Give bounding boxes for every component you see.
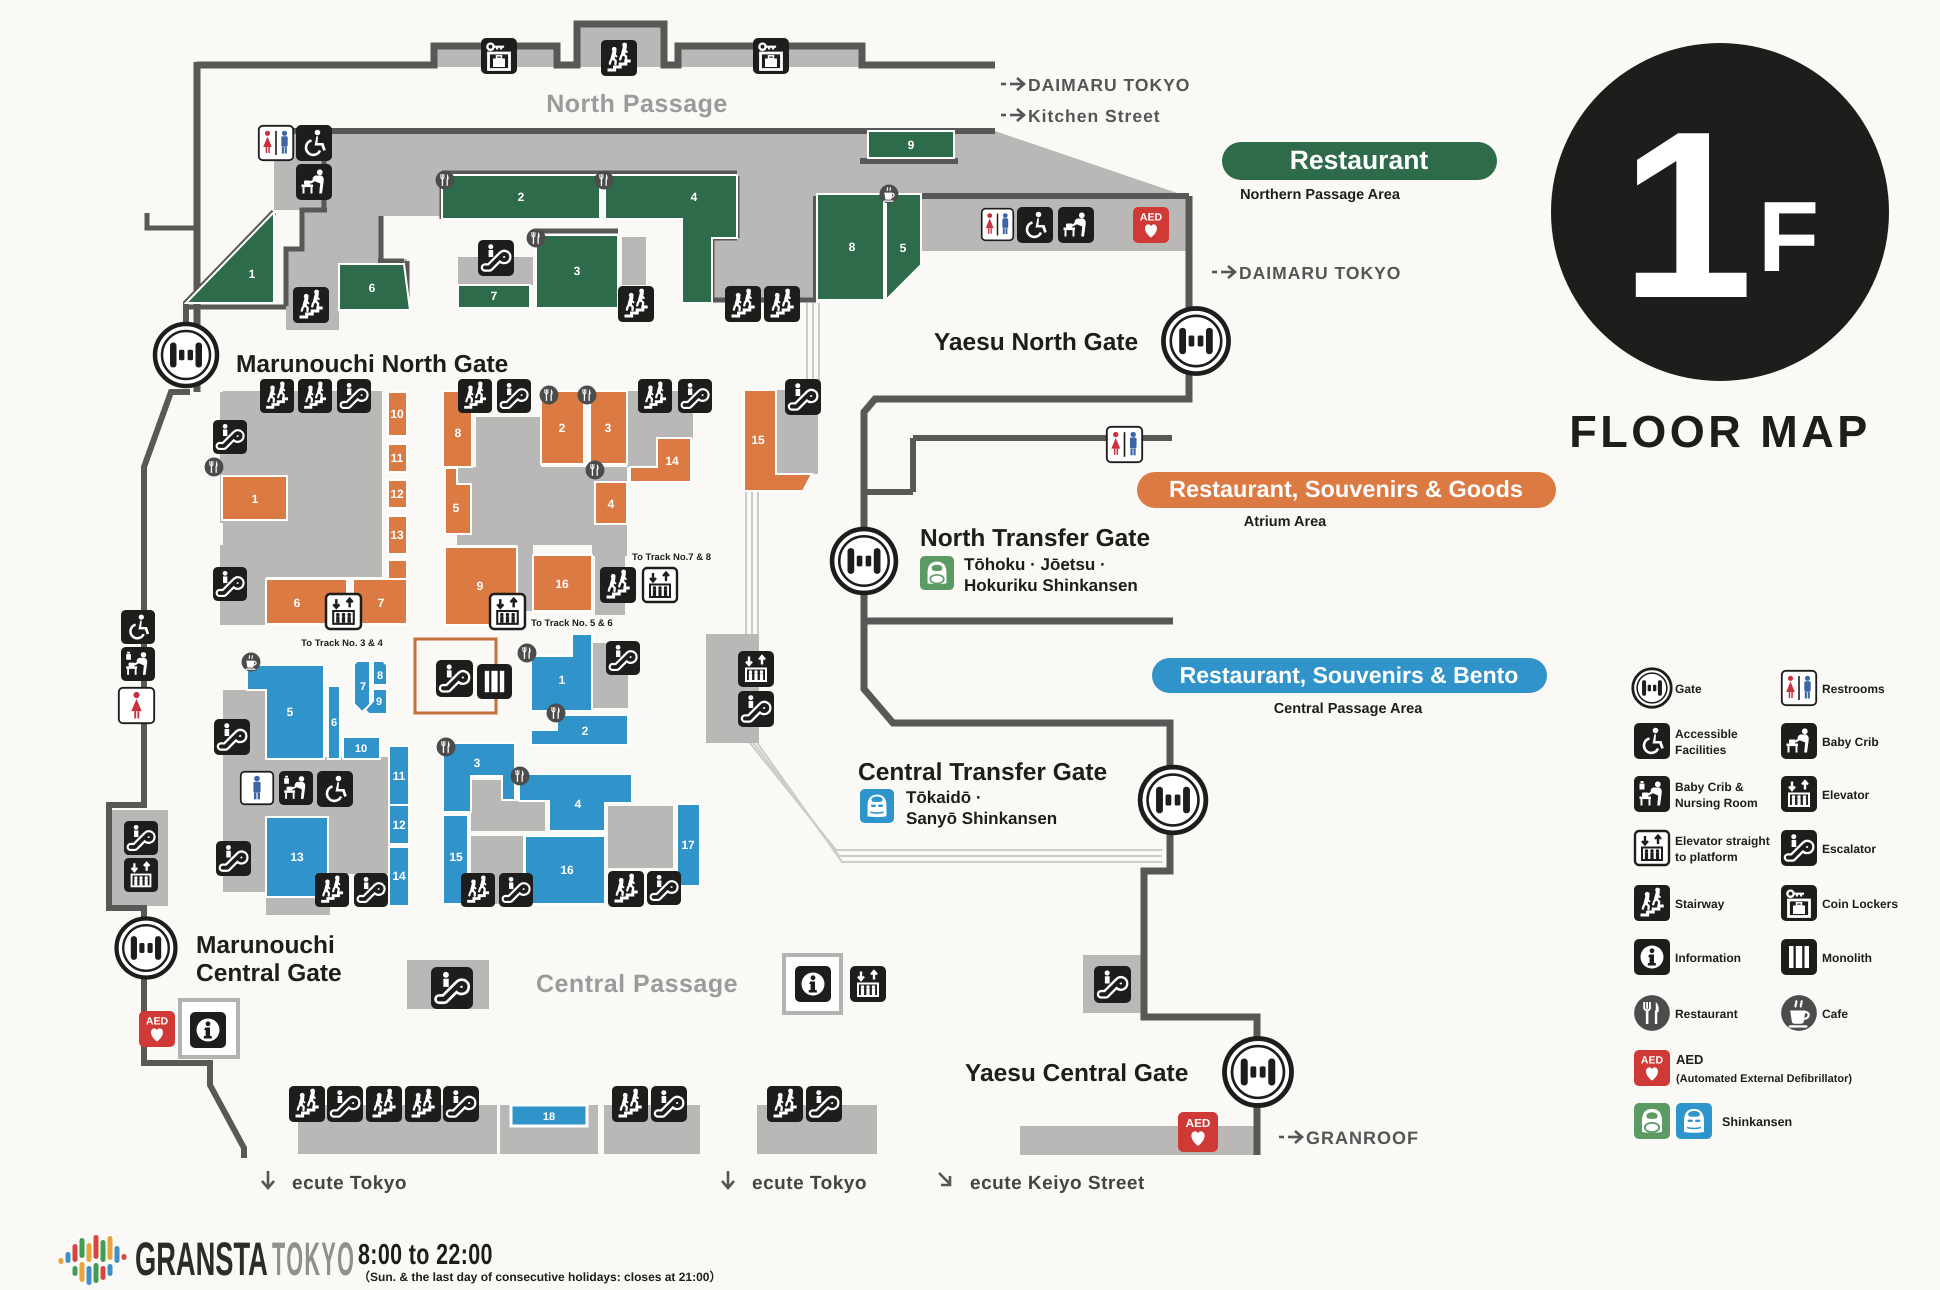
svg-text:7: 7 (378, 596, 385, 610)
svg-text:2: 2 (518, 190, 525, 204)
svg-text:ecute Tokyo: ecute Tokyo (752, 1173, 867, 1194)
svg-text:Sanyō Shinkansen: Sanyō Shinkansen (906, 809, 1057, 828)
svg-text:Cafe: Cafe (1822, 1007, 1848, 1021)
svg-text:10: 10 (355, 743, 367, 755)
svg-text:Kitchen Street: Kitchen Street (1028, 106, 1161, 126)
svg-text:8:00 to 22:00: 8:00 to 22:00 (358, 1239, 493, 1271)
svg-text:Central Transfer Gate: Central Transfer Gate (858, 759, 1107, 786)
svg-text:11: 11 (393, 769, 406, 783)
svg-text:5: 5 (900, 241, 907, 255)
svg-text:4: 4 (691, 190, 698, 204)
svg-text:Monolith: Monolith (1822, 951, 1872, 965)
svg-text:Marunouchi: Marunouchi (196, 932, 335, 959)
svg-text:1: 1 (1621, 83, 1753, 348)
svg-text:12: 12 (392, 818, 406, 832)
svg-text:Gate: Gate (1675, 682, 1702, 696)
svg-text:11: 11 (391, 451, 404, 465)
svg-text:North Transfer Gate: North Transfer Gate (920, 525, 1150, 552)
svg-text:DAIMARU TOKYO: DAIMARU TOKYO (1239, 263, 1401, 283)
svg-text:GRANSTA: GRANSTA (135, 1232, 268, 1285)
svg-text:Shinkansen: Shinkansen (1722, 1115, 1792, 1129)
svg-text:Restaurant, Souvenirs & Bento: Restaurant, Souvenirs & Bento (1180, 662, 1519, 688)
svg-text:2: 2 (559, 421, 566, 435)
svg-text:10: 10 (390, 407, 404, 421)
svg-text:Yaesu Central Gate: Yaesu Central Gate (965, 1060, 1188, 1087)
svg-text:Restaurant, Souvenirs & Goods: Restaurant, Souvenirs & Goods (1169, 476, 1523, 502)
svg-text:3: 3 (474, 756, 481, 770)
svg-text:4: 4 (608, 497, 615, 511)
svg-text:6: 6 (369, 281, 376, 295)
svg-text:15: 15 (751, 433, 765, 447)
svg-text:Elevator straight: Elevator straight (1675, 834, 1770, 848)
svg-text:AED: AED (1676, 1052, 1703, 1067)
svg-text:7: 7 (491, 289, 498, 303)
svg-text:To Track No. 3 & 4: To Track No. 3 & 4 (301, 638, 383, 649)
svg-text:Restaurant: Restaurant (1290, 145, 1429, 175)
svg-text:(Automated External Defibrilla: (Automated External Defibrillator) (1676, 1073, 1852, 1085)
svg-text:TOKYO: TOKYO (272, 1232, 355, 1285)
svg-text:5: 5 (453, 501, 460, 515)
svg-text:ecute Keiyo Street: ecute Keiyo Street (970, 1173, 1145, 1194)
svg-text:To Track No.7 & 8: To Track No.7 & 8 (632, 552, 711, 563)
svg-text:1: 1 (252, 492, 259, 506)
svg-text:9: 9 (477, 579, 484, 593)
svg-text:（Sun. & the last day of consec: （Sun. & the last day of consecutive holi… (358, 1270, 721, 1284)
svg-text:Restrooms: Restrooms (1822, 682, 1885, 696)
svg-text:F: F (1758, 181, 1819, 293)
svg-text:Information: Information (1675, 951, 1741, 965)
svg-text:18: 18 (543, 1111, 555, 1123)
svg-text:GRANROOF: GRANROOF (1306, 1128, 1419, 1148)
svg-text:To Track No. 5 & 6: To Track No. 5 & 6 (531, 618, 613, 629)
svg-text:9: 9 (376, 696, 382, 708)
svg-text:Northern Passage Area: Northern Passage Area (1240, 187, 1401, 203)
svg-text:3: 3 (605, 421, 612, 435)
svg-text:Stairway: Stairway (1675, 897, 1725, 911)
svg-text:6: 6 (331, 717, 337, 729)
svg-text:Baby Crib &: Baby Crib & (1675, 780, 1744, 794)
svg-text:6: 6 (294, 596, 301, 610)
svg-text:Central Gate: Central Gate (196, 960, 342, 987)
svg-text:4: 4 (575, 797, 582, 811)
svg-text:Accessible: Accessible (1675, 727, 1738, 741)
svg-text:ecute Tokyo: ecute Tokyo (292, 1173, 407, 1194)
svg-text:1: 1 (559, 673, 566, 687)
svg-text:Elevator: Elevator (1822, 788, 1870, 802)
svg-text:Tōkaidō ·: Tōkaidō · (906, 788, 982, 807)
svg-text:17: 17 (681, 838, 695, 852)
svg-text:14: 14 (665, 454, 679, 468)
svg-text:15: 15 (449, 850, 463, 864)
svg-text:Restaurant: Restaurant (1675, 1007, 1738, 1021)
svg-text:13: 13 (290, 850, 304, 864)
svg-text:Atrium Area: Atrium Area (1244, 514, 1327, 530)
svg-text:16: 16 (560, 863, 574, 877)
svg-text:DAIMARU TOKYO: DAIMARU TOKYO (1028, 75, 1190, 95)
svg-text:Yaesu North Gate: Yaesu North Gate (934, 329, 1138, 356)
svg-text:Coin Lockers: Coin Lockers (1822, 897, 1898, 911)
svg-text:to platform: to platform (1675, 850, 1738, 864)
svg-text:14: 14 (392, 869, 406, 883)
svg-text:13: 13 (390, 528, 404, 542)
svg-text:8: 8 (455, 426, 462, 440)
svg-text:North Passage: North Passage (546, 90, 728, 118)
svg-text:Marunouchi North Gate: Marunouchi North Gate (236, 351, 508, 378)
svg-text:2: 2 (582, 724, 589, 738)
svg-text:1: 1 (249, 267, 256, 281)
svg-text:Nursing Room: Nursing Room (1675, 796, 1758, 810)
svg-text:FLOOR MAP: FLOOR MAP (1569, 406, 1870, 457)
svg-text:Central Passage: Central Passage (536, 970, 738, 998)
svg-text:Central Passage Area: Central Passage Area (1274, 701, 1424, 717)
svg-text:7: 7 (360, 681, 366, 693)
svg-text:9: 9 (908, 138, 915, 152)
svg-text:8: 8 (849, 240, 856, 254)
svg-text:16: 16 (555, 577, 569, 591)
svg-text:12: 12 (390, 487, 404, 501)
svg-text:8: 8 (377, 670, 383, 682)
svg-text:Facilities: Facilities (1675, 743, 1727, 757)
svg-text:Baby Crib: Baby Crib (1822, 735, 1879, 749)
svg-text:3: 3 (574, 264, 581, 278)
svg-text:5: 5 (287, 705, 294, 719)
svg-text:Hokuriku Shinkansen: Hokuriku Shinkansen (964, 576, 1138, 595)
svg-text:Escalator: Escalator (1822, 842, 1876, 856)
svg-text:Tōhoku · Jōetsu ·: Tōhoku · Jōetsu · (964, 555, 1106, 574)
